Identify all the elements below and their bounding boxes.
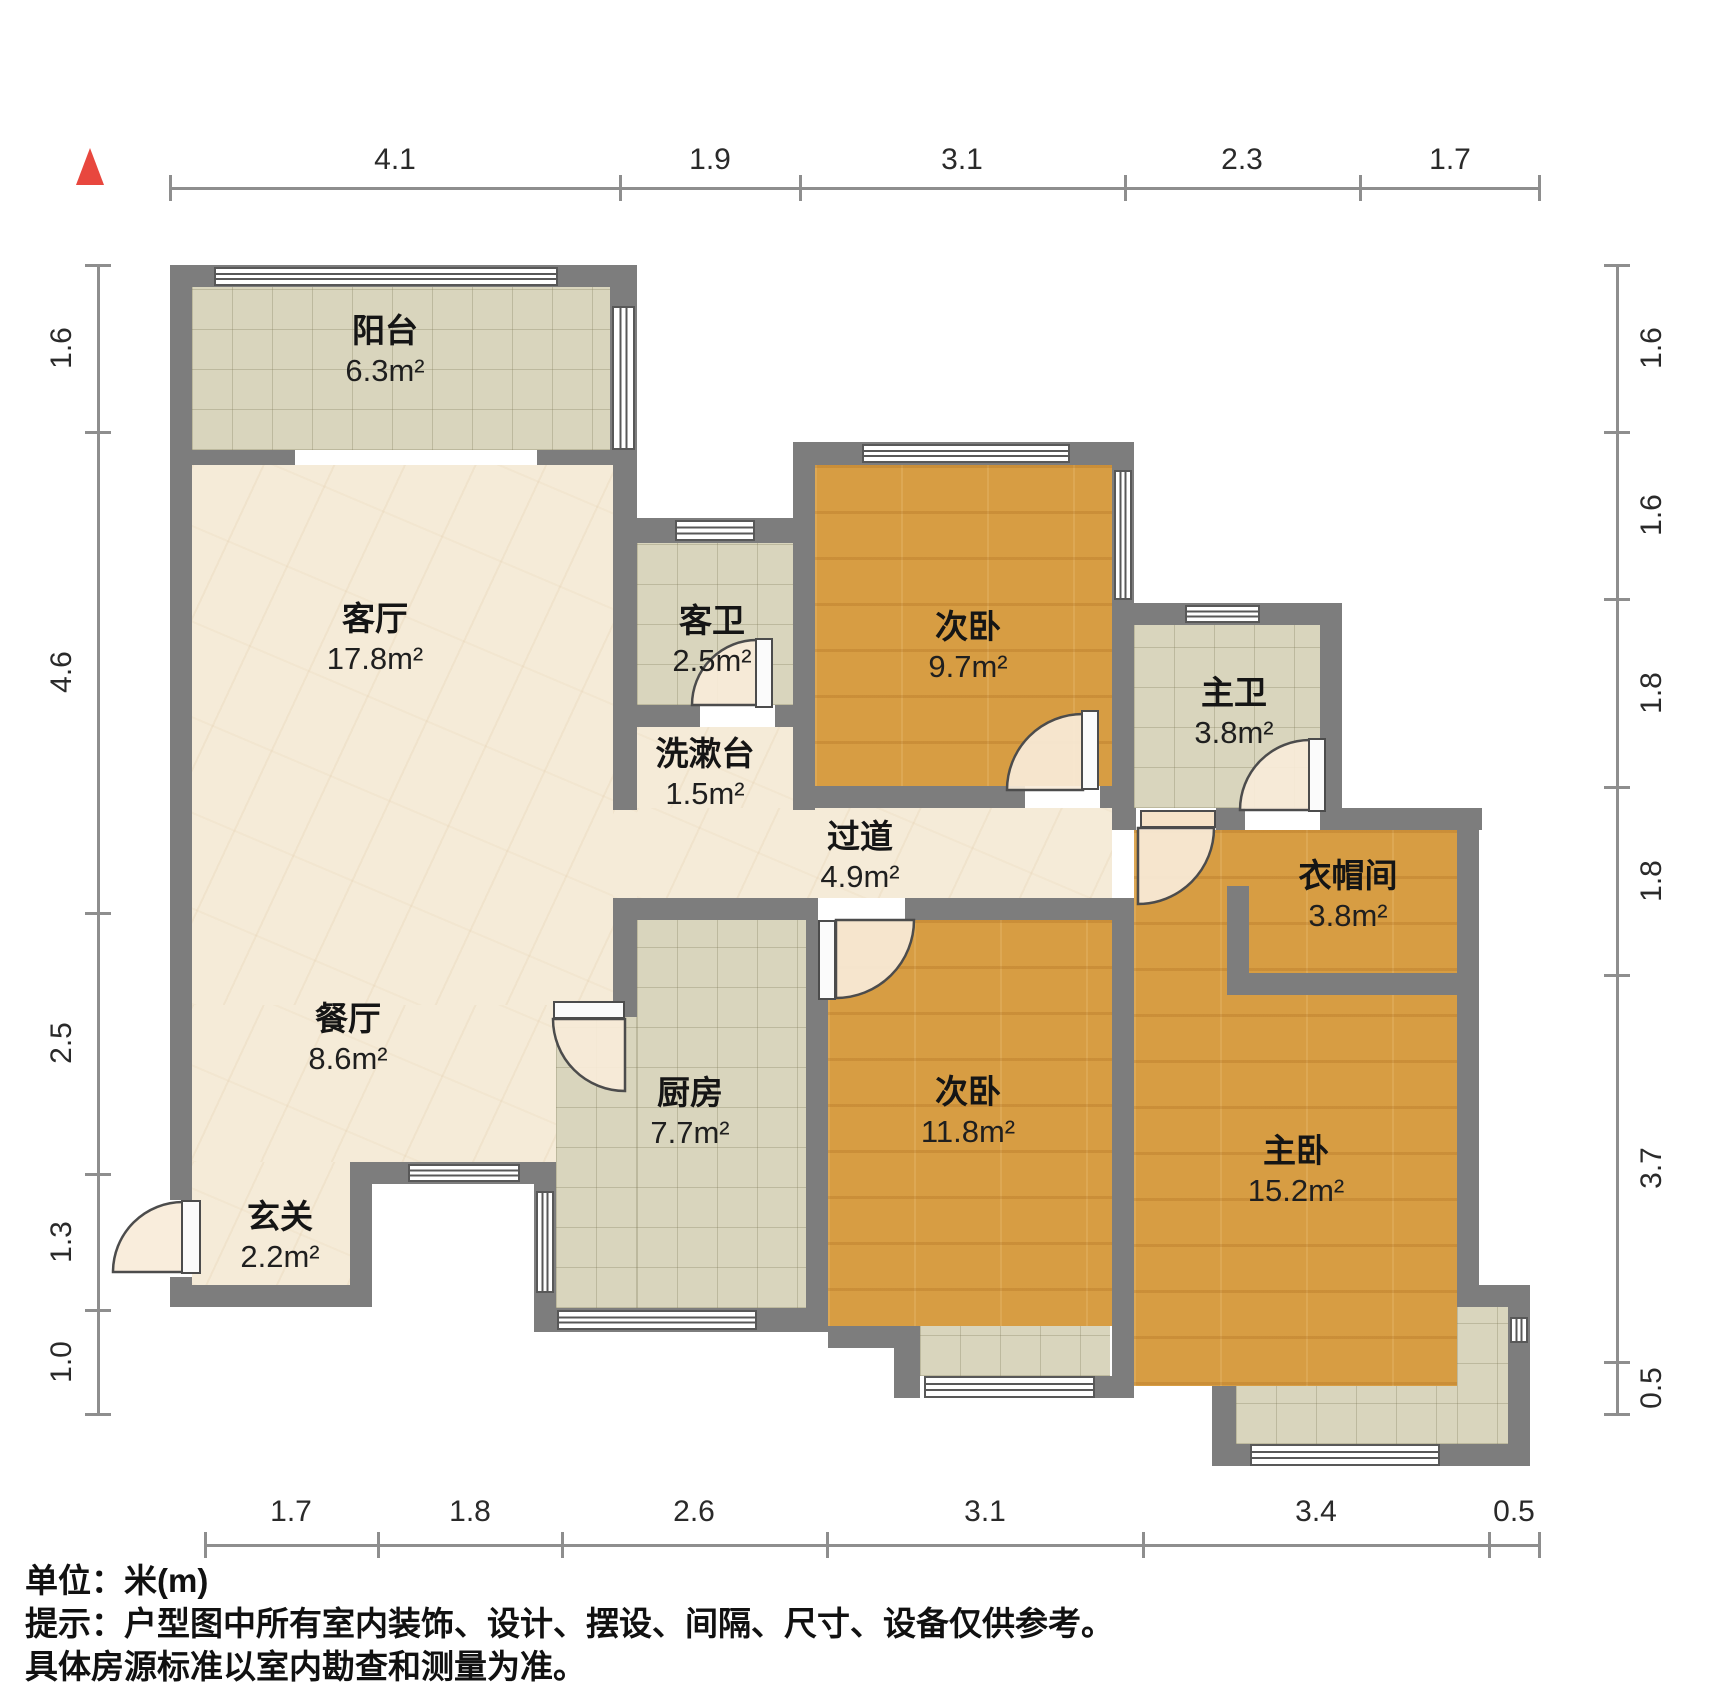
- room-name-guest-bath: 客卫: [672, 600, 751, 641]
- dim-bottom-1: 1.7: [270, 1495, 312, 1529]
- footer-notes: 单位：米(m) 提示：户型图中所有室内装饰、设计、摆设、间隔、尺寸、设备仅供参考…: [25, 1560, 1114, 1689]
- dim-left-4: 1.3: [45, 1221, 79, 1263]
- wall-bedroom-2b-south: [828, 1326, 894, 1348]
- wall-left-upper: [170, 265, 192, 1200]
- dim-tick: [169, 175, 172, 201]
- dim-tick: [1604, 786, 1630, 789]
- dim-tick: [1604, 431, 1630, 434]
- dim-tick: [377, 1532, 380, 1558]
- room-label-kitchen: 厨房 7.7m²: [650, 1072, 729, 1154]
- entry-door-panel: [181, 1200, 201, 1274]
- room-label-guest-bath: 客卫 2.5m²: [672, 600, 751, 682]
- room-area-balcony: 6.3m²: [345, 351, 424, 391]
- dim-tick: [204, 1532, 207, 1558]
- room-label-bedroom-2a: 次卧 9.7m²: [928, 606, 1007, 688]
- dim-bottom-6: 0.5: [1493, 1495, 1535, 1529]
- wall-bedroom-2a-bottom-right: [1100, 786, 1112, 808]
- dim-tick: [1604, 1413, 1630, 1416]
- wall-east-outer: [1508, 1285, 1530, 1466]
- master-door-panel: [1140, 810, 1216, 828]
- dim-tick: [1604, 598, 1630, 601]
- dim-left-5: 1.0: [45, 1341, 79, 1383]
- room-area-closet: 3.8m²: [1299, 896, 1398, 936]
- window-east-small: [1510, 1317, 1528, 1343]
- bedroom-2a-door-panel: [1081, 710, 1099, 790]
- bedroom-2a-door-arc: [1007, 714, 1083, 790]
- dim-left-1: 1.6: [45, 327, 79, 369]
- disclaimer-line-2: 具体房源标准以室内勘查和测量为准。: [25, 1646, 1114, 1689]
- dim-tick: [85, 1413, 111, 1416]
- wall-bay-2b-left: [894, 1326, 920, 1398]
- floor-living: [192, 465, 613, 1005]
- dim-bottom-2: 1.8: [449, 1495, 491, 1529]
- room-area-bedroom-2a: 9.7m²: [928, 647, 1007, 687]
- room-area-guest-bath: 2.5m²: [672, 641, 751, 681]
- wall-bay-2b-right: [1095, 1376, 1112, 1398]
- window-dining-south: [408, 1164, 520, 1182]
- dim-right-4: 1.8: [1635, 860, 1669, 902]
- room-label-closet: 衣帽间 3.8m²: [1299, 855, 1398, 937]
- room-name-hallway: 过道: [820, 816, 899, 857]
- floor-bay-southeast: [1457, 1307, 1508, 1444]
- room-label-balcony: 阳台 6.3m²: [345, 310, 424, 392]
- dim-tick: [85, 431, 111, 434]
- dim-top-3: 3.1: [941, 143, 983, 177]
- master-door-arc: [1138, 828, 1214, 904]
- dim-right-3: 1.8: [1635, 672, 1669, 714]
- room-label-washstand: 洗漱台 1.5m²: [656, 733, 755, 815]
- room-area-hallway: 4.9m²: [820, 857, 899, 897]
- unit-note: 单位：米(m): [25, 1560, 1114, 1603]
- dim-top-5: 1.7: [1429, 143, 1471, 177]
- dim-tick: [1124, 175, 1127, 201]
- dim-top-1: 4.1: [374, 143, 416, 177]
- room-name-closet: 衣帽间: [1299, 855, 1398, 896]
- room-area-master-bed: 15.2m²: [1248, 1171, 1344, 1211]
- wall-hall-south-right: [905, 898, 1112, 920]
- dim-top-2: 1.9: [689, 143, 731, 177]
- dim-top-4: 2.3: [1221, 143, 1263, 177]
- dim-right-6: 0.5: [1635, 1367, 1669, 1409]
- room-area-washstand: 1.5m²: [656, 774, 755, 814]
- room-label-master-bed: 主卧 15.2m²: [1248, 1130, 1344, 1212]
- bedroom-2b-door-panel: [818, 920, 836, 1000]
- wall-hall-east-a: [1112, 808, 1136, 830]
- dim-line-left: [97, 265, 100, 1415]
- dim-right-2: 1.6: [1635, 494, 1669, 536]
- wall-bay-master-b: [1440, 1444, 1530, 1466]
- wall-bedroom-2a-bottom-left: [815, 786, 1025, 808]
- room-area-bedroom-2b: 11.8m²: [921, 1112, 1015, 1152]
- room-name-kitchen: 厨房: [650, 1072, 729, 1113]
- room-name-master-bed: 主卧: [1248, 1130, 1344, 1171]
- dim-tick: [1359, 175, 1362, 201]
- wall-entry-south: [170, 1285, 372, 1307]
- floor-bay-bedroom-2b: [920, 1326, 1110, 1376]
- window-bedroom-2a-top: [862, 444, 1070, 463]
- room-label-bedroom-2b: 次卧 11.8m²: [921, 1071, 1015, 1153]
- kitchen-door-panel: [553, 1001, 625, 1019]
- dim-right-1: 1.6: [1635, 327, 1669, 369]
- window-kitchen-west: [536, 1191, 554, 1293]
- wall-guest-bath-right: [793, 442, 815, 810]
- dim-left-3: 2.5: [45, 1022, 79, 1064]
- window-master-bath: [1185, 605, 1260, 623]
- room-name-balcony: 阳台: [345, 310, 424, 351]
- dim-tick: [1142, 1532, 1145, 1558]
- dim-tick: [799, 175, 802, 201]
- room-name-bedroom-2b: 次卧: [921, 1071, 1015, 1112]
- room-label-living: 客厅 17.8m²: [327, 598, 423, 680]
- room-area-master-bath: 3.8m²: [1194, 713, 1273, 753]
- room-label-entry: 玄关 2.2m²: [240, 1196, 319, 1278]
- wall-bay-master-left: [1212, 1386, 1236, 1466]
- wall-bay-master-a: [1236, 1444, 1250, 1466]
- wall-bedroom-2b-right: [1112, 898, 1134, 1398]
- room-label-hallway: 过道 4.9m²: [820, 816, 899, 898]
- room-name-living: 客厅: [327, 598, 423, 639]
- window-bay-bedroom-2b: [924, 1376, 1095, 1398]
- floor-master-closet: [1134, 830, 1457, 1386]
- room-name-dining: 餐厅: [308, 998, 387, 1039]
- room-label-master-bath: 主卫 3.8m²: [1194, 672, 1273, 754]
- window-guest-bath: [675, 520, 755, 541]
- dim-tick: [1538, 175, 1541, 201]
- floorplan-canvas: 阳台 6.3m² 客厅 17.8m² 客卫 2.5m² 洗漱台 1.5m² 次卧…: [0, 0, 1716, 1694]
- dim-right-5: 3.7: [1635, 1147, 1669, 1189]
- dim-tick: [85, 912, 111, 915]
- dim-tick: [1604, 1361, 1630, 1364]
- disclaimer-line-1: 提示：户型图中所有室内装饰、设计、摆设、间隔、尺寸、设备仅供参考。: [25, 1603, 1114, 1646]
- entry-door-arc: [113, 1202, 183, 1272]
- dim-tick: [85, 264, 111, 267]
- dim-tick: [1538, 1532, 1541, 1558]
- floor-bay-master: [1236, 1386, 1457, 1444]
- wall-master-right: [1457, 808, 1479, 1307]
- room-area-dining: 8.6m²: [308, 1039, 387, 1079]
- room-label-dining: 餐厅 8.6m²: [308, 998, 387, 1080]
- dim-tick: [619, 175, 622, 201]
- dim-tick: [85, 1173, 111, 1176]
- guest-bath-door-panel: [755, 638, 773, 708]
- window-balcony-right: [612, 306, 635, 450]
- dim-tick: [85, 1309, 111, 1312]
- room-name-entry: 玄关: [240, 1196, 319, 1237]
- master-bath-door-panel: [1308, 738, 1326, 812]
- wall-closet-bottom: [1227, 973, 1460, 995]
- room-name-washstand: 洗漱台: [656, 733, 755, 774]
- dim-tick: [561, 1532, 564, 1558]
- dim-tick: [1604, 974, 1630, 977]
- floor-hall-west: [613, 810, 637, 898]
- window-bedroom-2a-right: [1114, 470, 1132, 600]
- dim-tick: [1488, 1532, 1491, 1558]
- north-arrow-icon: [76, 148, 104, 185]
- wall-guest-bath-bottom-left: [637, 705, 700, 727]
- room-name-bedroom-2a: 次卧: [928, 606, 1007, 647]
- window-bay-master: [1250, 1444, 1440, 1466]
- kitchen-door-arc: [553, 1019, 625, 1091]
- room-area-entry: 2.2m²: [240, 1237, 319, 1277]
- dim-tick: [1604, 264, 1630, 267]
- dim-line-top: [170, 187, 1540, 190]
- dim-bottom-4: 3.1: [964, 1495, 1006, 1529]
- window-kitchen-south: [557, 1310, 757, 1330]
- wall-guest-bath-bottom-right: [775, 705, 793, 727]
- bedroom-2b-door-arc: [836, 920, 914, 998]
- dim-line-right: [1616, 265, 1619, 1415]
- dim-tick: [826, 1532, 829, 1558]
- room-name-master-bath: 主卫: [1194, 672, 1273, 713]
- wall-balcony-divider-right: [537, 450, 637, 465]
- room-area-living: 17.8m²: [327, 639, 423, 679]
- dim-bottom-3: 2.6: [673, 1495, 715, 1529]
- wall-hall-south-left: [613, 898, 818, 920]
- dim-left-2: 4.6: [45, 651, 79, 693]
- dim-bottom-5: 3.4: [1295, 1495, 1337, 1529]
- room-area-kitchen: 7.7m²: [650, 1113, 729, 1153]
- wall-hall-east-b: [1216, 808, 1245, 830]
- wall-balcony-divider-left: [192, 450, 295, 465]
- wall-living-right: [613, 465, 637, 810]
- dim-line-bottom: [205, 1544, 1540, 1547]
- window-balcony-top: [214, 267, 558, 286]
